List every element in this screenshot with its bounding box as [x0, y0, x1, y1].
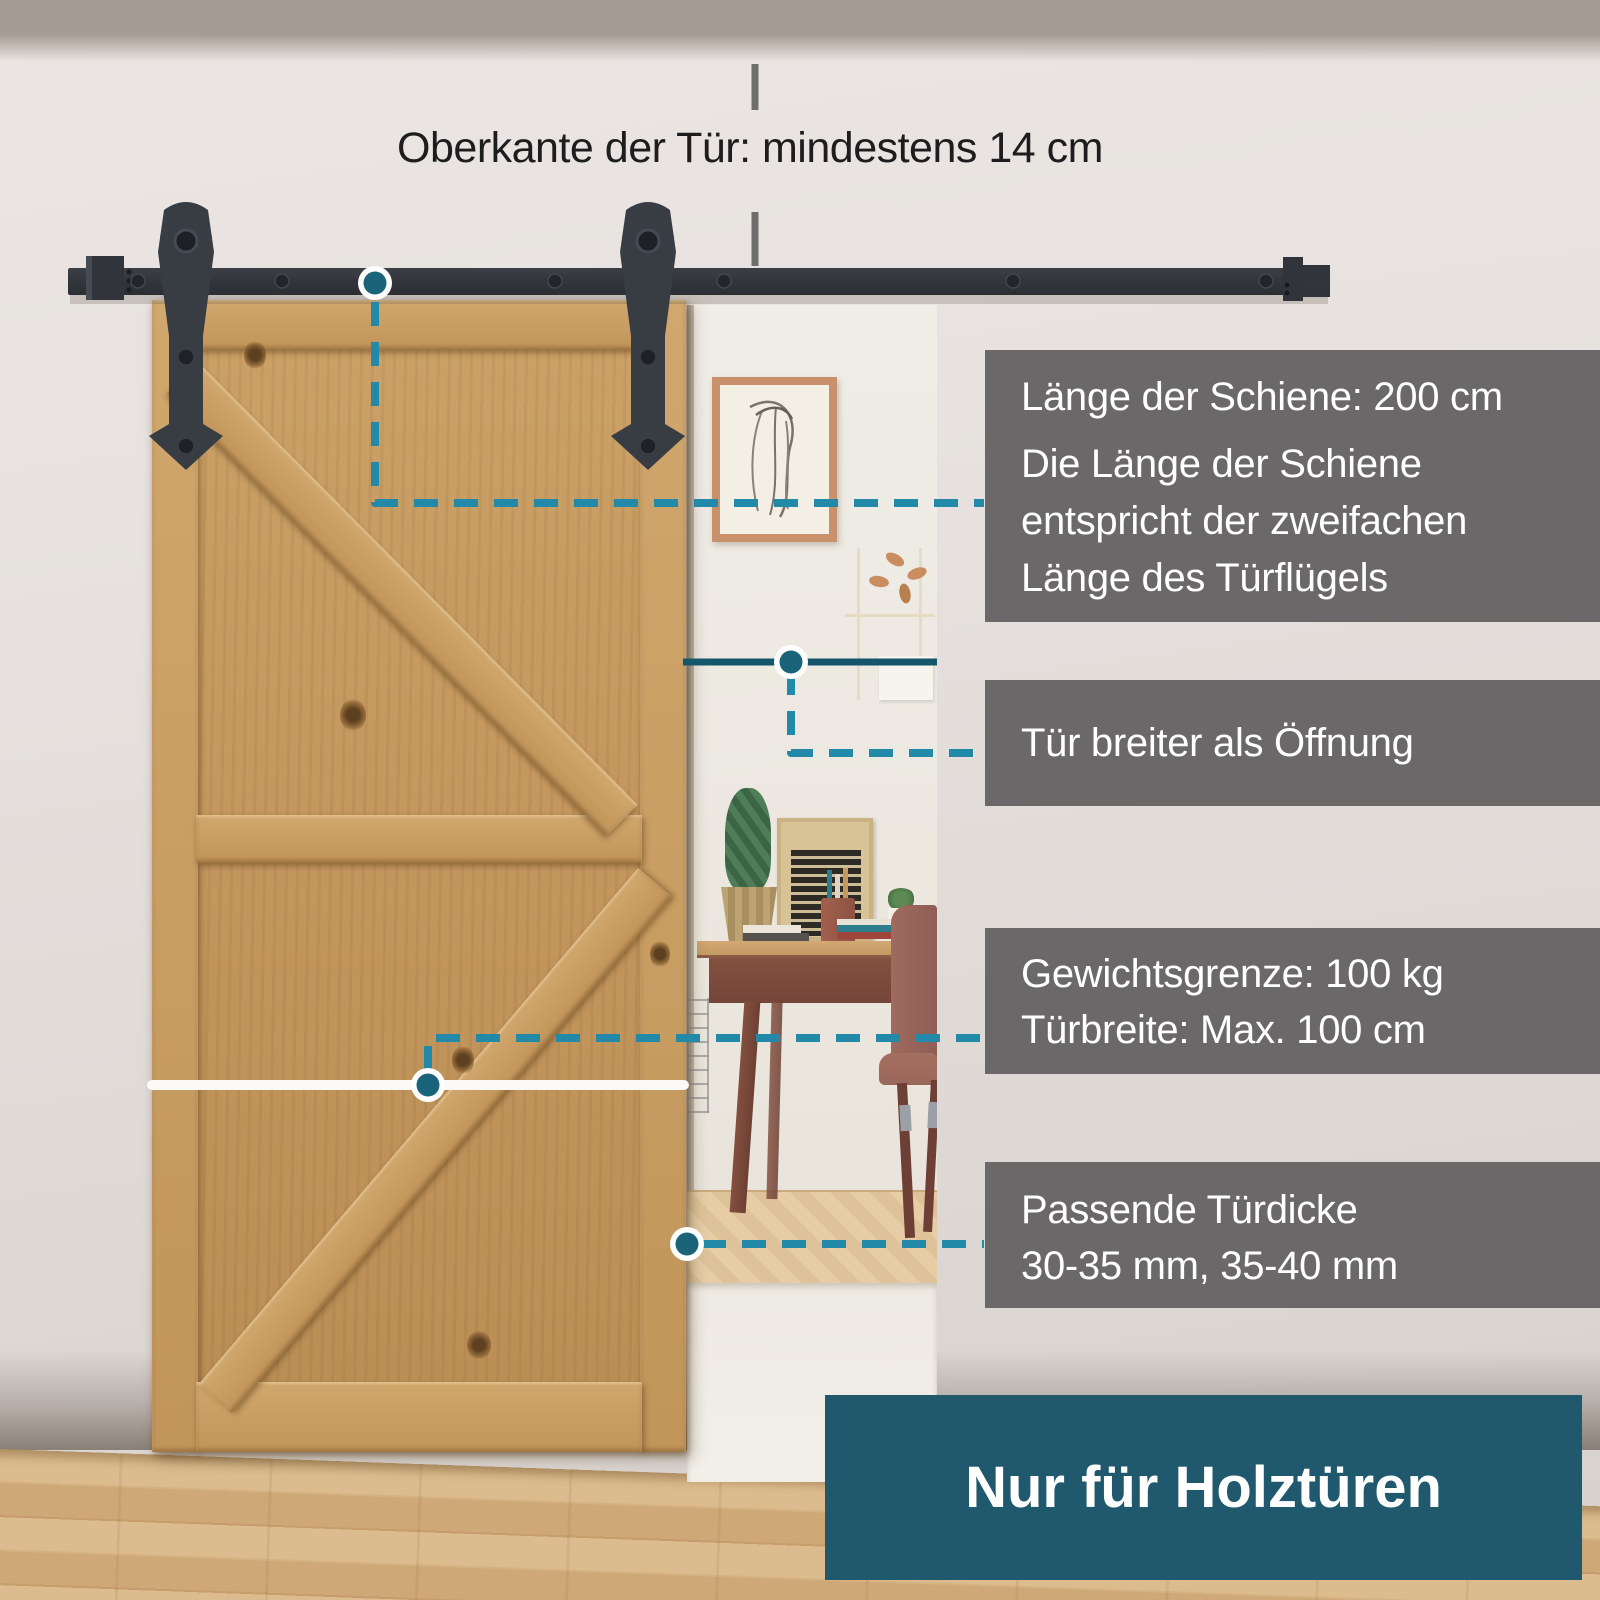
rail-length-title: Länge der Schiene: 200 cm — [1021, 374, 1600, 420]
footer-banner: Nur für Holztüren — [825, 1395, 1582, 1580]
thickness-title-line: Passende Türdicke — [1021, 1182, 1600, 1238]
marker-dots — [358, 266, 808, 1261]
door-hanger-left — [149, 202, 223, 470]
info-panel-rail-length: Länge der Schiene: 200 cm Die Länge der … — [985, 350, 1600, 622]
rail-length-desc-line2: entspricht der zweifachen — [1021, 493, 1600, 550]
top-clearance-label: Oberkante der Tür: mindestens 14 cm — [150, 124, 1350, 173]
info-panel-door-wider: Tür breiter als Öffnung — [985, 680, 1600, 806]
thickness-values-line: 30-35 mm, 35-40 mm — [1021, 1238, 1600, 1294]
door-wider-label: Tür breiter als Öffnung — [1021, 721, 1414, 766]
info-panel-weight-limit: Gewichtsgrenze: 100 kg Türbreite: Max. 1… — [985, 928, 1600, 1074]
connector-weight — [428, 1038, 984, 1070]
sliding-rail — [68, 268, 1330, 295]
connector-door-wider — [791, 671, 984, 753]
door-hanger-right — [611, 202, 685, 470]
door-max-width-line: Türbreite: Max. 100 cm — [1021, 1002, 1600, 1058]
rail-shadow — [70, 295, 1328, 304]
info-panel-door-thickness: Passende Türdicke 30-35 mm, 35-40 mm — [985, 1162, 1600, 1308]
rail-length-desc-line3: Länge des Türflügels — [1021, 550, 1600, 607]
connector-rail-length — [375, 302, 984, 503]
product-infographic: Länge der Schiene: 200 cm Die Länge der … — [0, 0, 1600, 1600]
annotation-connectors — [375, 302, 984, 1244]
rail-length-desc-line1: Die Länge der Schiene — [1021, 436, 1600, 493]
footer-banner-label: Nur für Holztüren — [965, 1454, 1442, 1521]
weight-limit-line: Gewichtsgrenze: 100 kg — [1021, 946, 1600, 1002]
